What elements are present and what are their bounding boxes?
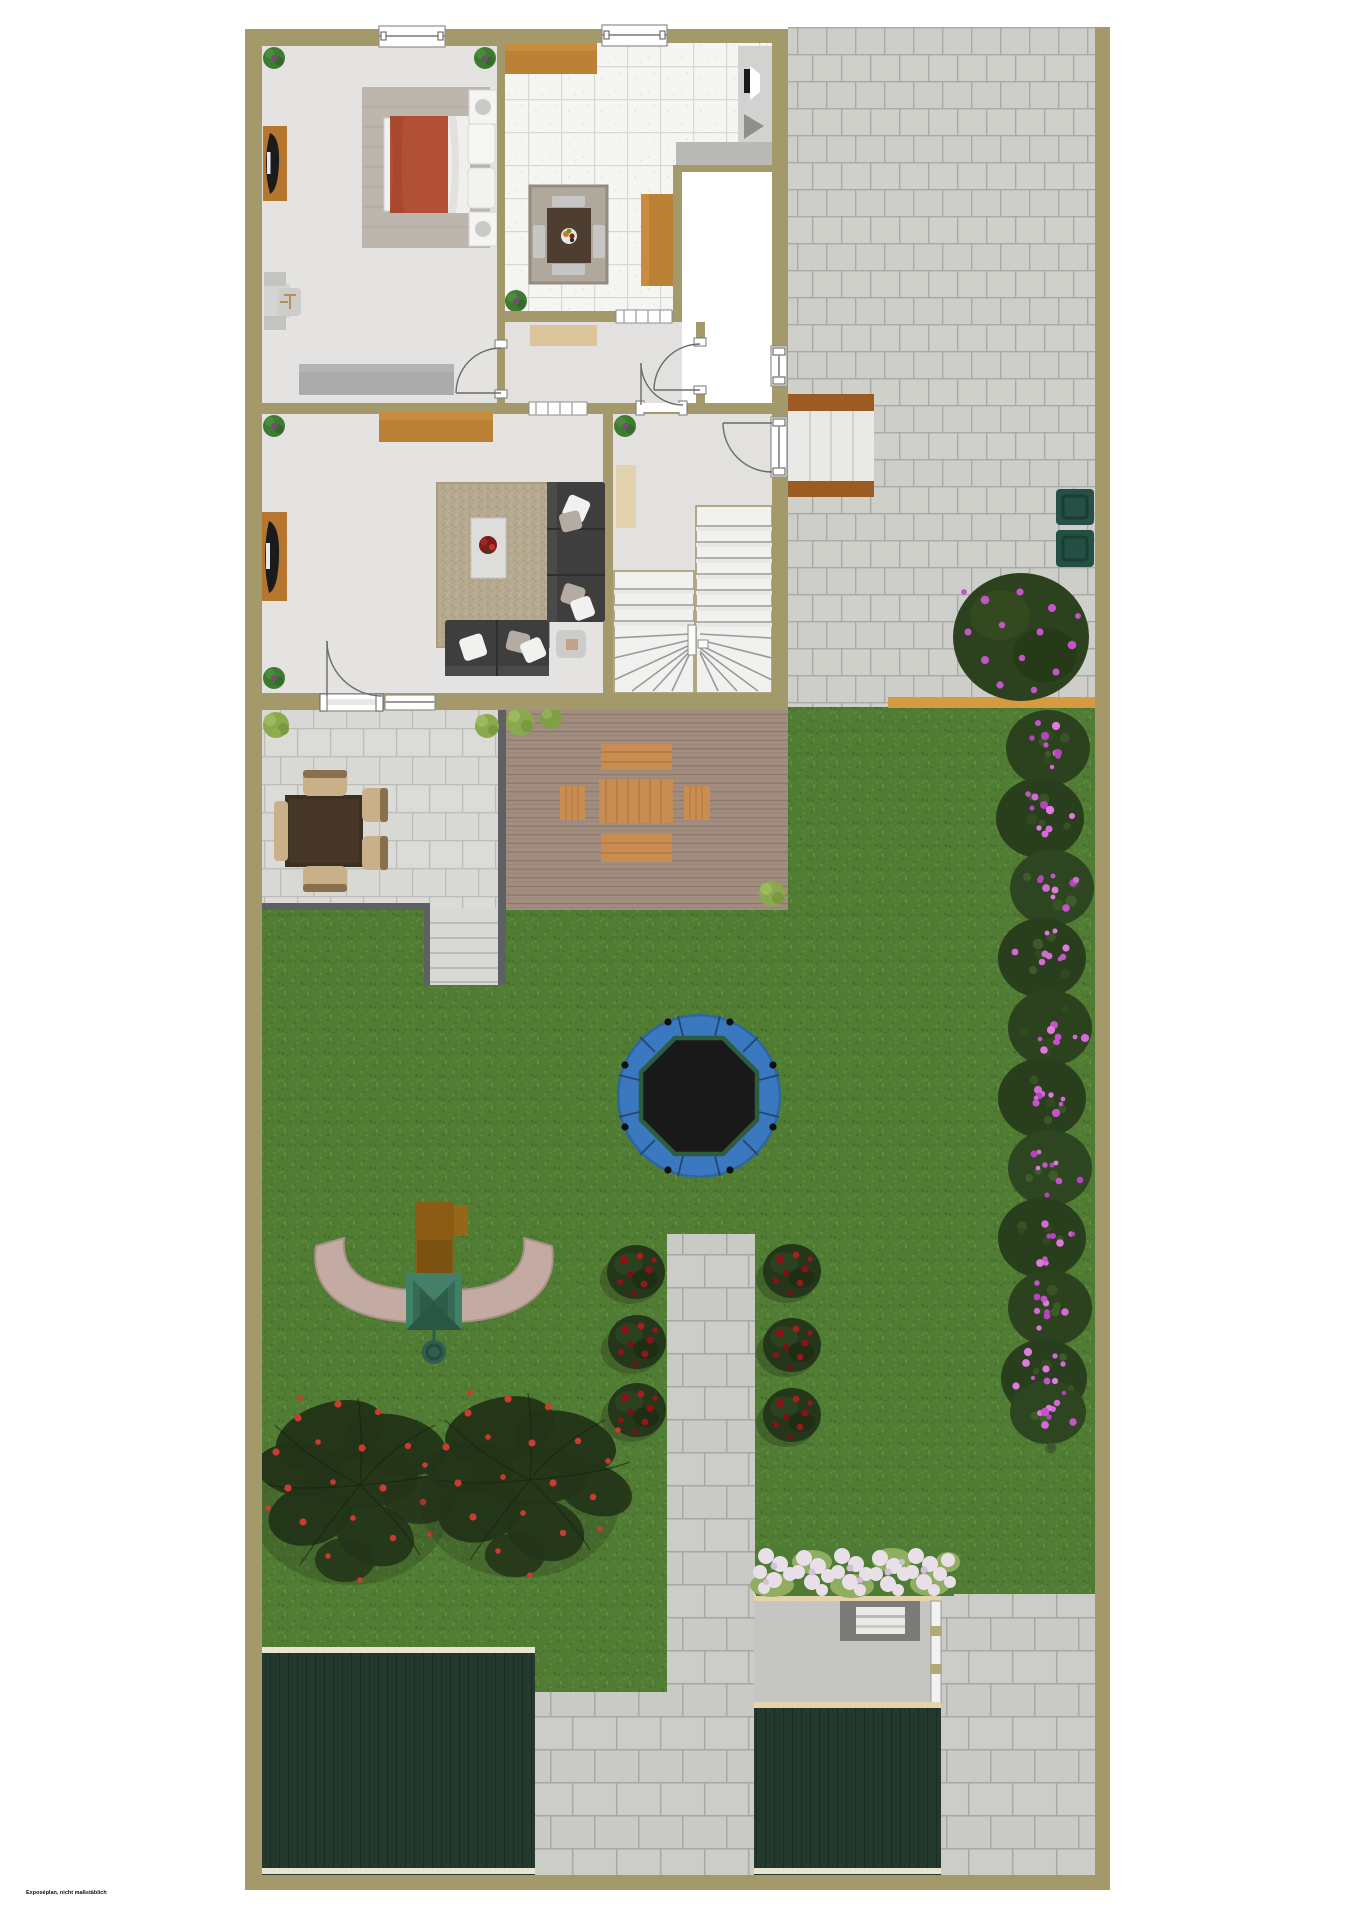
svg-text:Exposéplan, nicht maßstäblich: Exposéplan, nicht maßstäblich	[26, 1890, 107, 1896]
